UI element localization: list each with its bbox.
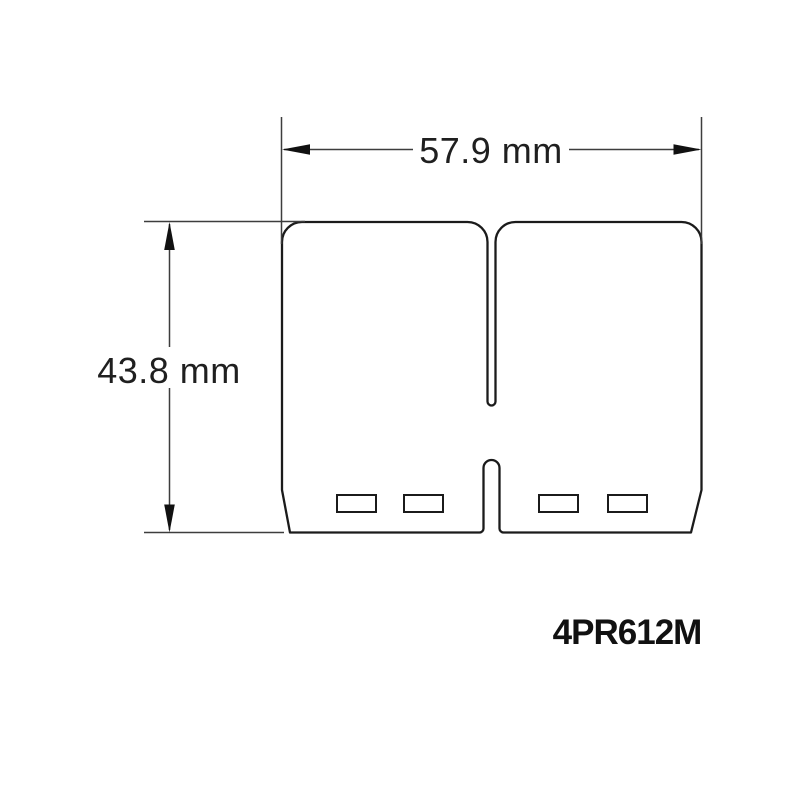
width-dimension-label: 57.9 mm — [419, 130, 563, 171]
drawing-svg: 57.9 mm 43.8 mm 4PR612M — [0, 0, 800, 800]
vent-slot-rect-2 — [404, 495, 443, 512]
reed-petal-dimension-drawing: 57.9 mm 43.8 mm 4PR612M — [0, 0, 800, 800]
width-arrowhead-left-icon — [282, 144, 310, 155]
width-dimension: 57.9 mm — [282, 117, 702, 244]
height-arrowhead-top-icon — [164, 222, 175, 250]
vent-slot-rect-1 — [337, 495, 376, 512]
height-dimension: 43.8 mm — [97, 222, 305, 533]
reed-petal-outline — [282, 222, 702, 533]
height-dimension-label: 43.8 mm — [97, 350, 241, 391]
vent-slot-rect-4 — [608, 495, 647, 512]
height-arrowhead-bottom-icon — [164, 505, 175, 533]
vent-slot-rect-3 — [539, 495, 578, 512]
width-arrowhead-right-icon — [674, 144, 702, 155]
part-number-label: 4PR612M — [553, 613, 702, 652]
